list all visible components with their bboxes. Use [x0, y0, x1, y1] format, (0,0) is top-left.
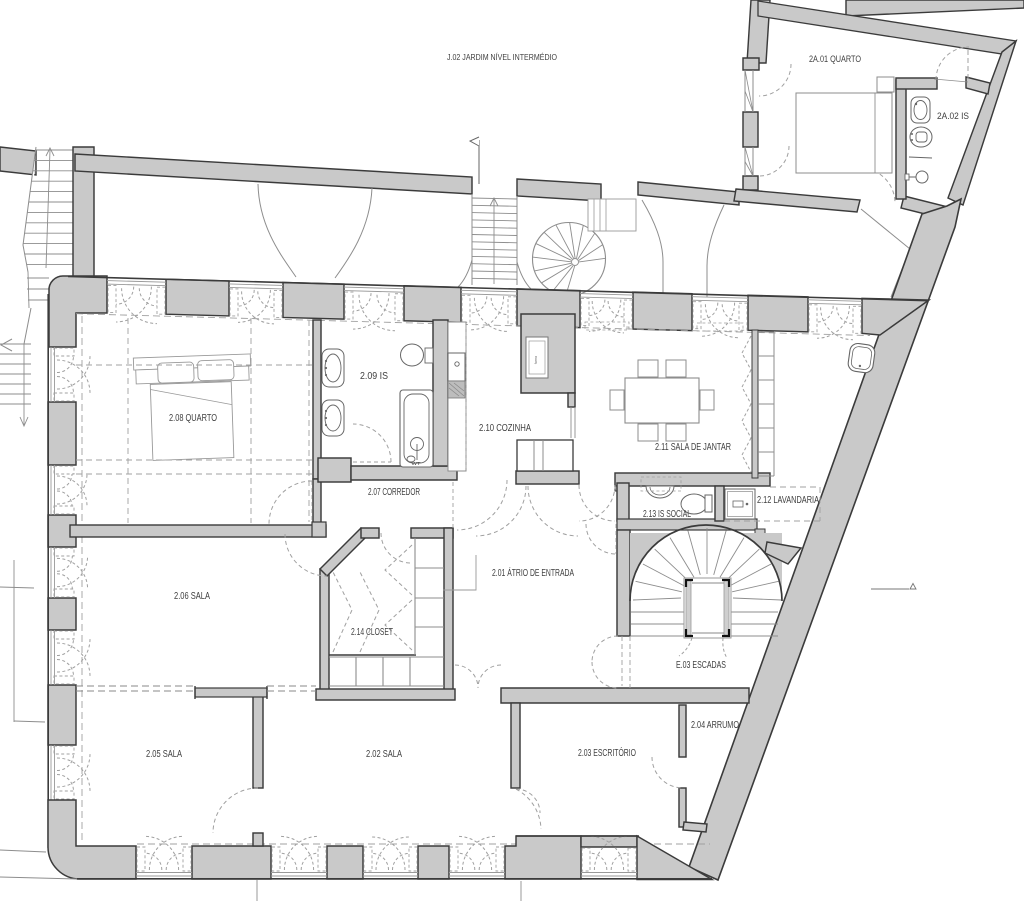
- svg-text:2.13 IS SOCIAL: 2.13 IS SOCIAL: [643, 509, 691, 520]
- svg-text:2.01 ÁTRIO DE ENTRADA: 2.01 ÁTRIO DE ENTRADA: [492, 566, 574, 579]
- svg-text:J.02 JARDIM NÍVEL INTERMÉDIO: J.02 JARDIM NÍVEL INTERMÉDIO: [447, 52, 557, 62]
- svg-text:2.02 SALA: 2.02 SALA: [366, 749, 402, 760]
- svg-text:WT: WT: [412, 461, 422, 466]
- svg-text:2.05 SALA: 2.05 SALA: [146, 749, 182, 760]
- svg-text:forno: forno: [534, 356, 538, 364]
- svg-text:2.10 COZINHA: 2.10 COZINHA: [479, 423, 531, 434]
- svg-text:2.07 CORREDOR: 2.07 CORREDOR: [368, 487, 420, 498]
- svg-text:2.08 QUARTO: 2.08 QUARTO: [169, 413, 217, 424]
- svg-text:2A.01 QUARTO: 2A.01 QUARTO: [809, 54, 861, 65]
- svg-text:2.11 SALA DE JANTAR: 2.11 SALA DE JANTAR: [655, 442, 731, 453]
- svg-text:2.09 IS: 2.09 IS: [360, 371, 388, 382]
- svg-text:2.14 CLOSET: 2.14 CLOSET: [351, 627, 393, 638]
- svg-text:2.12 LAVANDARIA: 2.12 LAVANDARIA: [757, 495, 819, 506]
- svg-text:2.03 ESCRITÓRIO: 2.03 ESCRITÓRIO: [578, 746, 636, 759]
- svg-text:E.03 ESCADAS: E.03 ESCADAS: [676, 660, 726, 671]
- svg-text:2A.02 IS: 2A.02 IS: [937, 111, 969, 122]
- svg-text:2.06 SALA: 2.06 SALA: [174, 591, 210, 602]
- svg-text:2.04 ARRUMO: 2.04 ARRUMO: [691, 720, 739, 731]
